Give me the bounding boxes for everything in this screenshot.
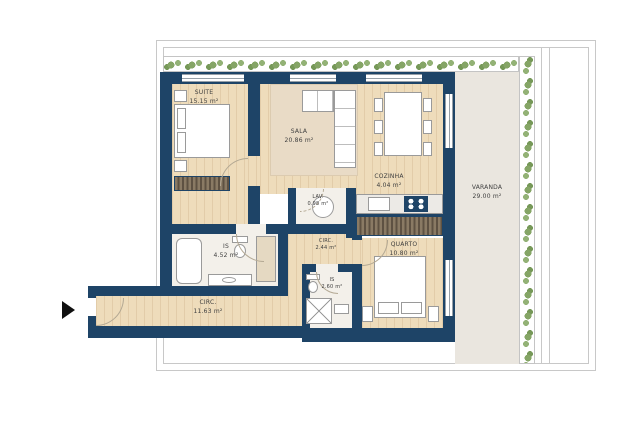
- sliding-door-glass: [445, 94, 453, 148]
- terrace-line-2: [549, 47, 550, 364]
- nightstand: [362, 306, 373, 322]
- window-glass: [366, 74, 422, 82]
- terrace-line-1: [541, 47, 542, 364]
- dining-table: [384, 92, 422, 156]
- room-area: 29.00 m²: [457, 193, 517, 202]
- room-label-varanda: VARANDA 29.00 m²: [457, 184, 517, 201]
- room-name: VARANDA: [457, 184, 517, 193]
- room-area: 4.04 m²: [359, 182, 419, 191]
- pillow: [401, 302, 422, 314]
- room-area: 2.44 m²: [304, 245, 348, 252]
- sofa-arm: [302, 90, 334, 112]
- dining-chair: [423, 98, 432, 112]
- room-floor-passage: [288, 264, 302, 296]
- room-name: CIRC.: [178, 299, 238, 308]
- pillow: [177, 108, 186, 129]
- room-area: 11.63 m²: [178, 308, 238, 317]
- wall-segment: [160, 72, 172, 290]
- wall-segment: [88, 316, 96, 338]
- dining-chair: [374, 142, 383, 156]
- sofa: [334, 90, 356, 168]
- room-name: SUITE: [174, 89, 234, 98]
- washbasin: [222, 277, 236, 283]
- wall-segment: [248, 84, 260, 156]
- wall-segment: [302, 328, 455, 342]
- door-gap: [236, 224, 266, 234]
- dining-chair: [423, 120, 432, 134]
- room-area: 15.15 m²: [174, 98, 234, 107]
- room-name: IS: [196, 243, 256, 252]
- room-area: 10.80 m²: [374, 250, 434, 259]
- room-floor-varanda: [455, 72, 519, 364]
- wardrobe: [356, 216, 443, 236]
- room-label-is2: IS 2.60 m²: [310, 277, 354, 292]
- wall-segment: [88, 326, 302, 338]
- floor-plan-canvas: SUITE 15.15 m² SALA 20.86 m² COZINHA 4.0…: [0, 0, 640, 427]
- planter-top: [163, 56, 519, 72]
- room-label-circ2: CIRC. 11.63 m²: [178, 299, 238, 316]
- room-label-lav: LAV. 0.98 m²: [296, 194, 340, 209]
- kitchen-sink: [368, 197, 390, 211]
- room-label-is1: IS 4.52 m²: [196, 243, 256, 260]
- room-area: 2.60 m²: [310, 284, 354, 291]
- wall-segment: [248, 186, 260, 224]
- window-glass: [445, 260, 453, 316]
- entrance-arrow: [62, 301, 75, 319]
- dining-chair: [423, 142, 432, 156]
- room-floor-suite-door: [248, 156, 260, 186]
- pillow: [177, 132, 186, 153]
- room-name: QUARTO: [374, 241, 434, 250]
- room-name: COZINHA: [359, 173, 419, 182]
- room-area: 0.98 m²: [296, 201, 340, 208]
- nightstand: [174, 160, 187, 172]
- window-glass: [182, 74, 244, 82]
- room-name: CIRC.: [304, 238, 348, 245]
- wall-segment: [88, 286, 288, 296]
- room-area: 20.86 m²: [269, 137, 329, 146]
- wall-segment: [346, 188, 356, 224]
- window-glass: [290, 74, 336, 82]
- dining-chair: [374, 120, 383, 134]
- dining-chair: [374, 98, 383, 112]
- room-label-cozinha: COZINHA 4.04 m²: [359, 173, 419, 190]
- washbasin: [334, 304, 349, 314]
- shower: [306, 298, 332, 324]
- wall-segment: [160, 224, 288, 234]
- wall-segment: [278, 234, 288, 288]
- wall-segment: [88, 286, 96, 298]
- door-gap: [316, 264, 338, 272]
- room-name: LAV.: [296, 194, 340, 201]
- room-label-suite: SUITE 15.15 m²: [174, 89, 234, 106]
- stove: [404, 196, 428, 212]
- nightstand: [428, 306, 439, 322]
- room-area: 4.52 m²: [196, 252, 256, 261]
- room-label-quarto: QUARTO 10.80 m²: [374, 241, 434, 258]
- room-name: SALA: [269, 128, 329, 137]
- door-gap: [352, 240, 362, 264]
- room-label-sala: SALA 20.86 m²: [269, 128, 329, 145]
- room-name: IS: [310, 277, 354, 284]
- planter-right: [519, 56, 535, 364]
- pillow: [378, 302, 399, 314]
- room-label-circ1: CIRC. 2.44 m²: [304, 238, 348, 253]
